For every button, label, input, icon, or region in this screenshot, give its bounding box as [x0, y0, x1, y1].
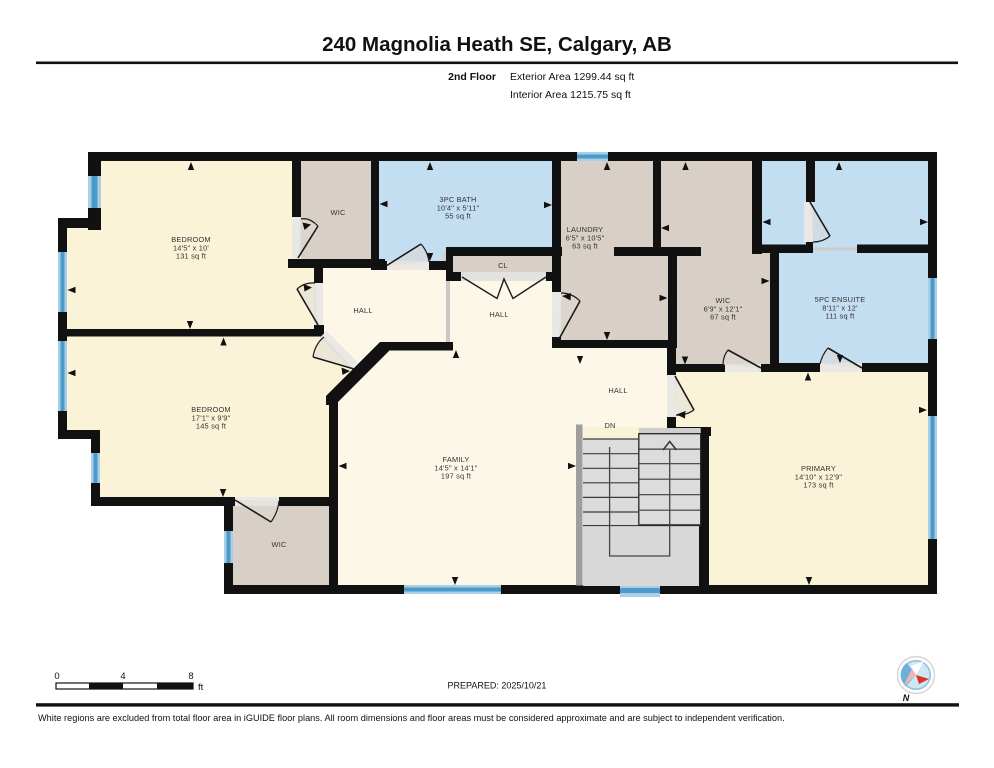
svg-text:Exterior Area 1299.44 sq ft: Exterior Area 1299.44 sq ft	[510, 71, 634, 83]
svg-text:173 sq ft: 173 sq ft	[803, 481, 833, 490]
svg-text:DN: DN	[604, 421, 615, 430]
svg-text:HALL: HALL	[608, 386, 627, 395]
svg-text:HALL: HALL	[489, 310, 508, 319]
svg-text:2nd Floor: 2nd Floor	[448, 71, 496, 83]
svg-text:4: 4	[120, 671, 125, 682]
svg-text:PREPARED: 2025/10/21: PREPARED: 2025/10/21	[448, 681, 547, 691]
svg-text:111 sq ft: 111 sq ft	[825, 312, 854, 321]
svg-text:ft: ft	[198, 682, 204, 693]
svg-text:HALL: HALL	[353, 306, 372, 315]
svg-text:55 sq ft: 55 sq ft	[445, 212, 471, 221]
svg-text:63 sq ft: 63 sq ft	[572, 242, 598, 251]
svg-text:145 sq ft: 145 sq ft	[196, 422, 226, 431]
svg-text:8: 8	[188, 671, 193, 682]
svg-text:White regions are excluded fro: White regions are excluded from total fl…	[38, 713, 785, 723]
svg-text:67 sq ft: 67 sq ft	[710, 313, 736, 322]
svg-text:0: 0	[54, 671, 59, 682]
svg-text:131 sq ft: 131 sq ft	[176, 252, 206, 261]
svg-text:WIC: WIC	[272, 540, 287, 549]
svg-text:CL: CL	[498, 261, 508, 270]
svg-text:Interior Area 1215.75 sq ft: Interior Area 1215.75 sq ft	[510, 89, 631, 101]
svg-text:WIC: WIC	[331, 208, 346, 217]
svg-text:197 sq ft: 197 sq ft	[441, 472, 471, 481]
svg-text:N: N	[903, 693, 910, 703]
svg-text:240 Magnolia Heath SE, Calgary: 240 Magnolia Heath SE, Calgary, AB	[322, 33, 672, 56]
